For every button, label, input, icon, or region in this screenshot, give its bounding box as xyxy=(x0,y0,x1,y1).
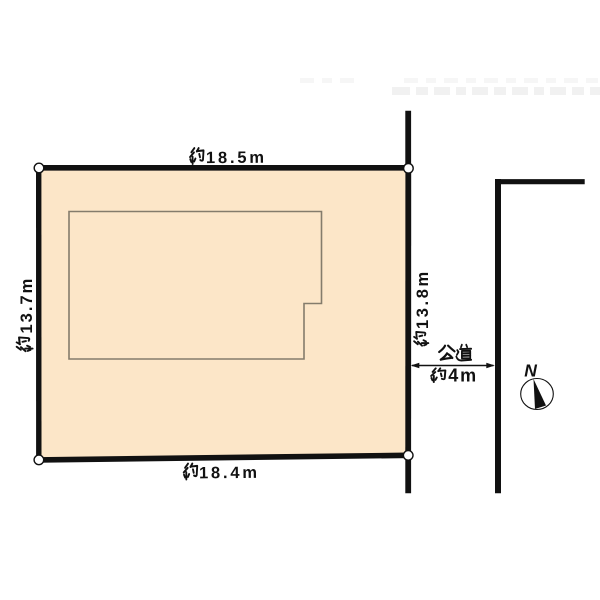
svg-text:18.5m: 18.5m xyxy=(206,149,267,167)
svg-text:13.7m: 13.7m xyxy=(18,277,36,334)
svg-text:13.8m: 13.8m xyxy=(414,269,432,329)
svg-text:N: N xyxy=(524,361,537,381)
svg-text:18.4m: 18.4m xyxy=(199,464,260,483)
svg-text:4m: 4m xyxy=(448,366,478,386)
